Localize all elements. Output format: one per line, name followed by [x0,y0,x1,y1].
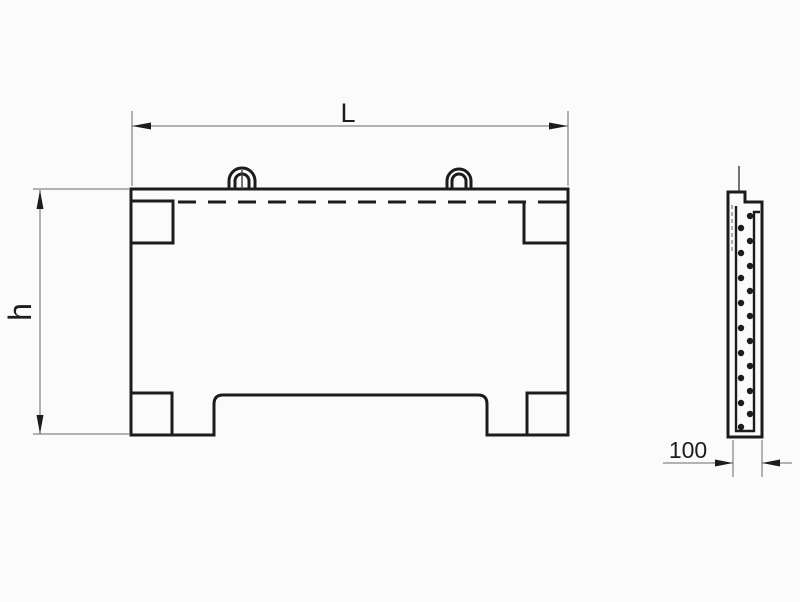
rebar-dot [747,288,753,294]
lifting-loop-right [447,169,471,190]
rebar-dot [738,275,744,281]
rebar-dot [738,300,744,306]
rebar-dot [738,400,744,406]
dimension-length: L [132,98,568,186]
rebar-dot [747,313,753,319]
rebar-dot [738,225,744,231]
arrowhead-left [132,123,151,130]
dimension-length-label: L [340,98,355,128]
arrowhead-right-inward [762,460,780,467]
rebar-dot [738,250,744,256]
arrowhead-top [37,190,44,209]
rebar-dot [738,424,744,430]
rebar-dot [747,388,753,394]
rebar-dots [738,213,753,430]
rebar-dot [738,375,744,381]
dimension-height-label: h [2,303,38,321]
rebar-dot [747,213,753,219]
rebar-dot [747,263,753,269]
corner-block-bottom-right [527,393,568,435]
arrowhead-bottom [37,415,44,434]
arrowhead-right [549,123,568,130]
rebar-dot [738,325,744,331]
corner-block-top-right [524,202,568,243]
side-view [728,166,762,437]
dimension-thickness: 100 [663,437,792,477]
rebar-dot [747,338,753,344]
technical-drawing: L h [0,0,800,602]
rebar-dot [747,238,753,244]
rebar-dot [747,411,753,417]
panel-outline [131,189,568,435]
rebar-dot [747,363,753,369]
drawing-canvas: L h [0,0,800,602]
lifting-loop-left [229,168,255,190]
corner-block-bottom-left [131,393,172,435]
corner-block-top-left [131,201,173,243]
dimension-thickness-label: 100 [669,437,707,463]
dimension-height: h [2,189,129,434]
rebar-dot [738,350,744,356]
section-outline [728,192,762,437]
front-view [131,168,568,435]
arrowhead-left-inward [715,460,733,467]
